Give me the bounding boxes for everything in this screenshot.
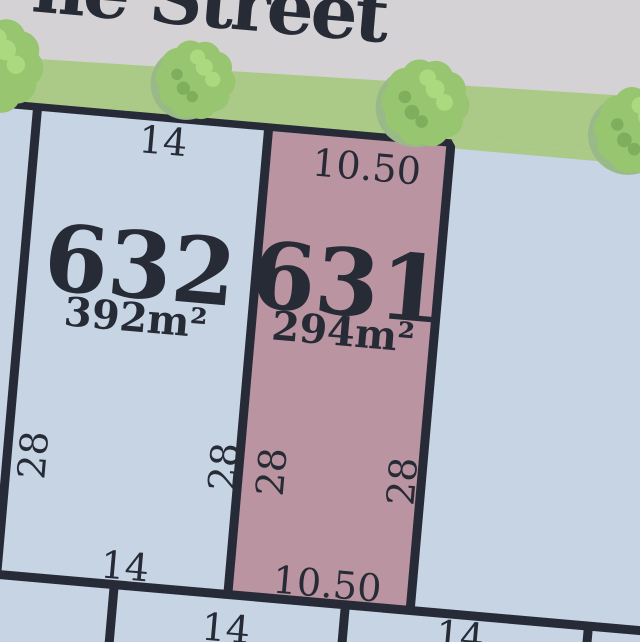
dim-lot631-side-right: 28 [378,455,426,507]
lot-632[interactable] [0,106,269,594]
dim-lot632-frontage: 14 [137,117,189,165]
plan-svg: ne Street 632 392m² 14 14 28 28 631 294m… [0,0,640,642]
rotated-plan: ne Street 632 392m² 14 14 28 28 631 294m… [0,0,640,642]
dim-lot632-side-left: 28 [9,429,57,481]
dim-lot632-rear: 14 [99,542,151,590]
dim-rear-lot-2: 14 [434,612,486,642]
dim-lot631-frontage: 10.50 [311,140,423,193]
dim-lot632-side-right: 28 [200,441,248,493]
dim-lot631-side-left: 28 [248,446,296,498]
estate-plan-canvas: ne Street 632 392m² 14 14 28 28 631 294m… [0,0,640,642]
dim-rear-lot-1: 14 [200,604,252,642]
dim-lot631-rear: 10.50 [271,557,383,610]
